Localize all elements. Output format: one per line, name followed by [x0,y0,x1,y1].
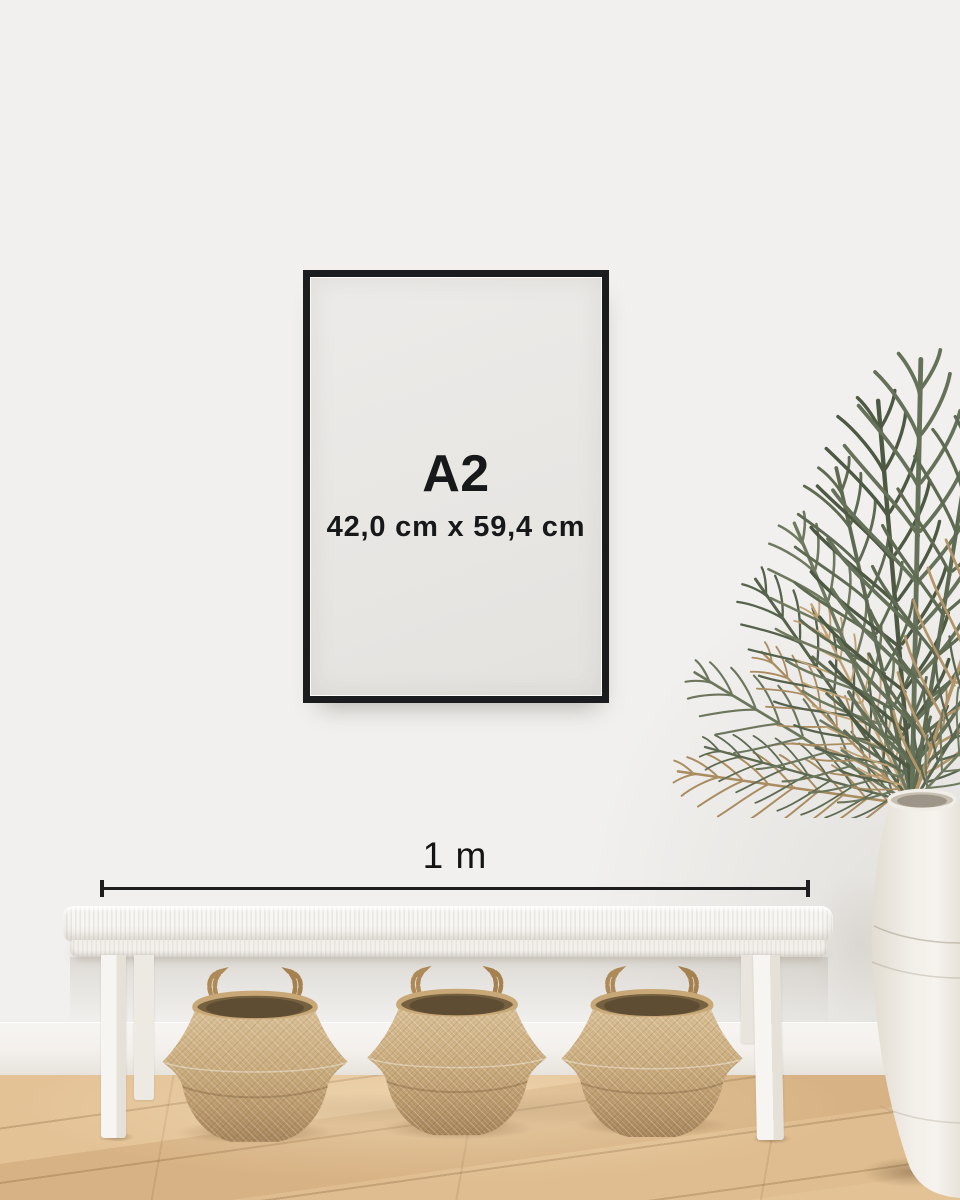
dimension-indicator: 1 m [101,837,809,899]
dimension-label: 1 m [101,837,809,874]
seagrass-basket-2 [363,962,551,1146]
palm-plant [618,318,960,818]
dimension-tick-left [100,880,104,897]
bench-leg-front-left [101,955,126,1138]
room-scene: 1 m A2 42,0 cm x 59,4 cm [0,0,960,1200]
bench-seat-edge [70,940,827,957]
poster-dimensions-label: 42,0 cm x 59,4 cm [327,513,586,542]
seagrass-basket-3 [556,965,748,1145]
seagrass-basket-1 [158,966,352,1150]
dimension-line [101,887,809,890]
bench-leg-front-right [753,955,784,1140]
poster: A2 42,0 cm x 59,4 cm [310,277,602,696]
vase-body [872,802,960,1198]
poster-size-label: A2 [422,448,489,500]
picture-frame: A2 42,0 cm x 59,4 cm [303,270,609,703]
bench-seat [63,906,833,942]
bench-leg-back-left [134,955,154,1100]
dimension-tick-right [806,880,810,897]
palm-fronds [664,349,960,818]
vase [856,776,960,1200]
